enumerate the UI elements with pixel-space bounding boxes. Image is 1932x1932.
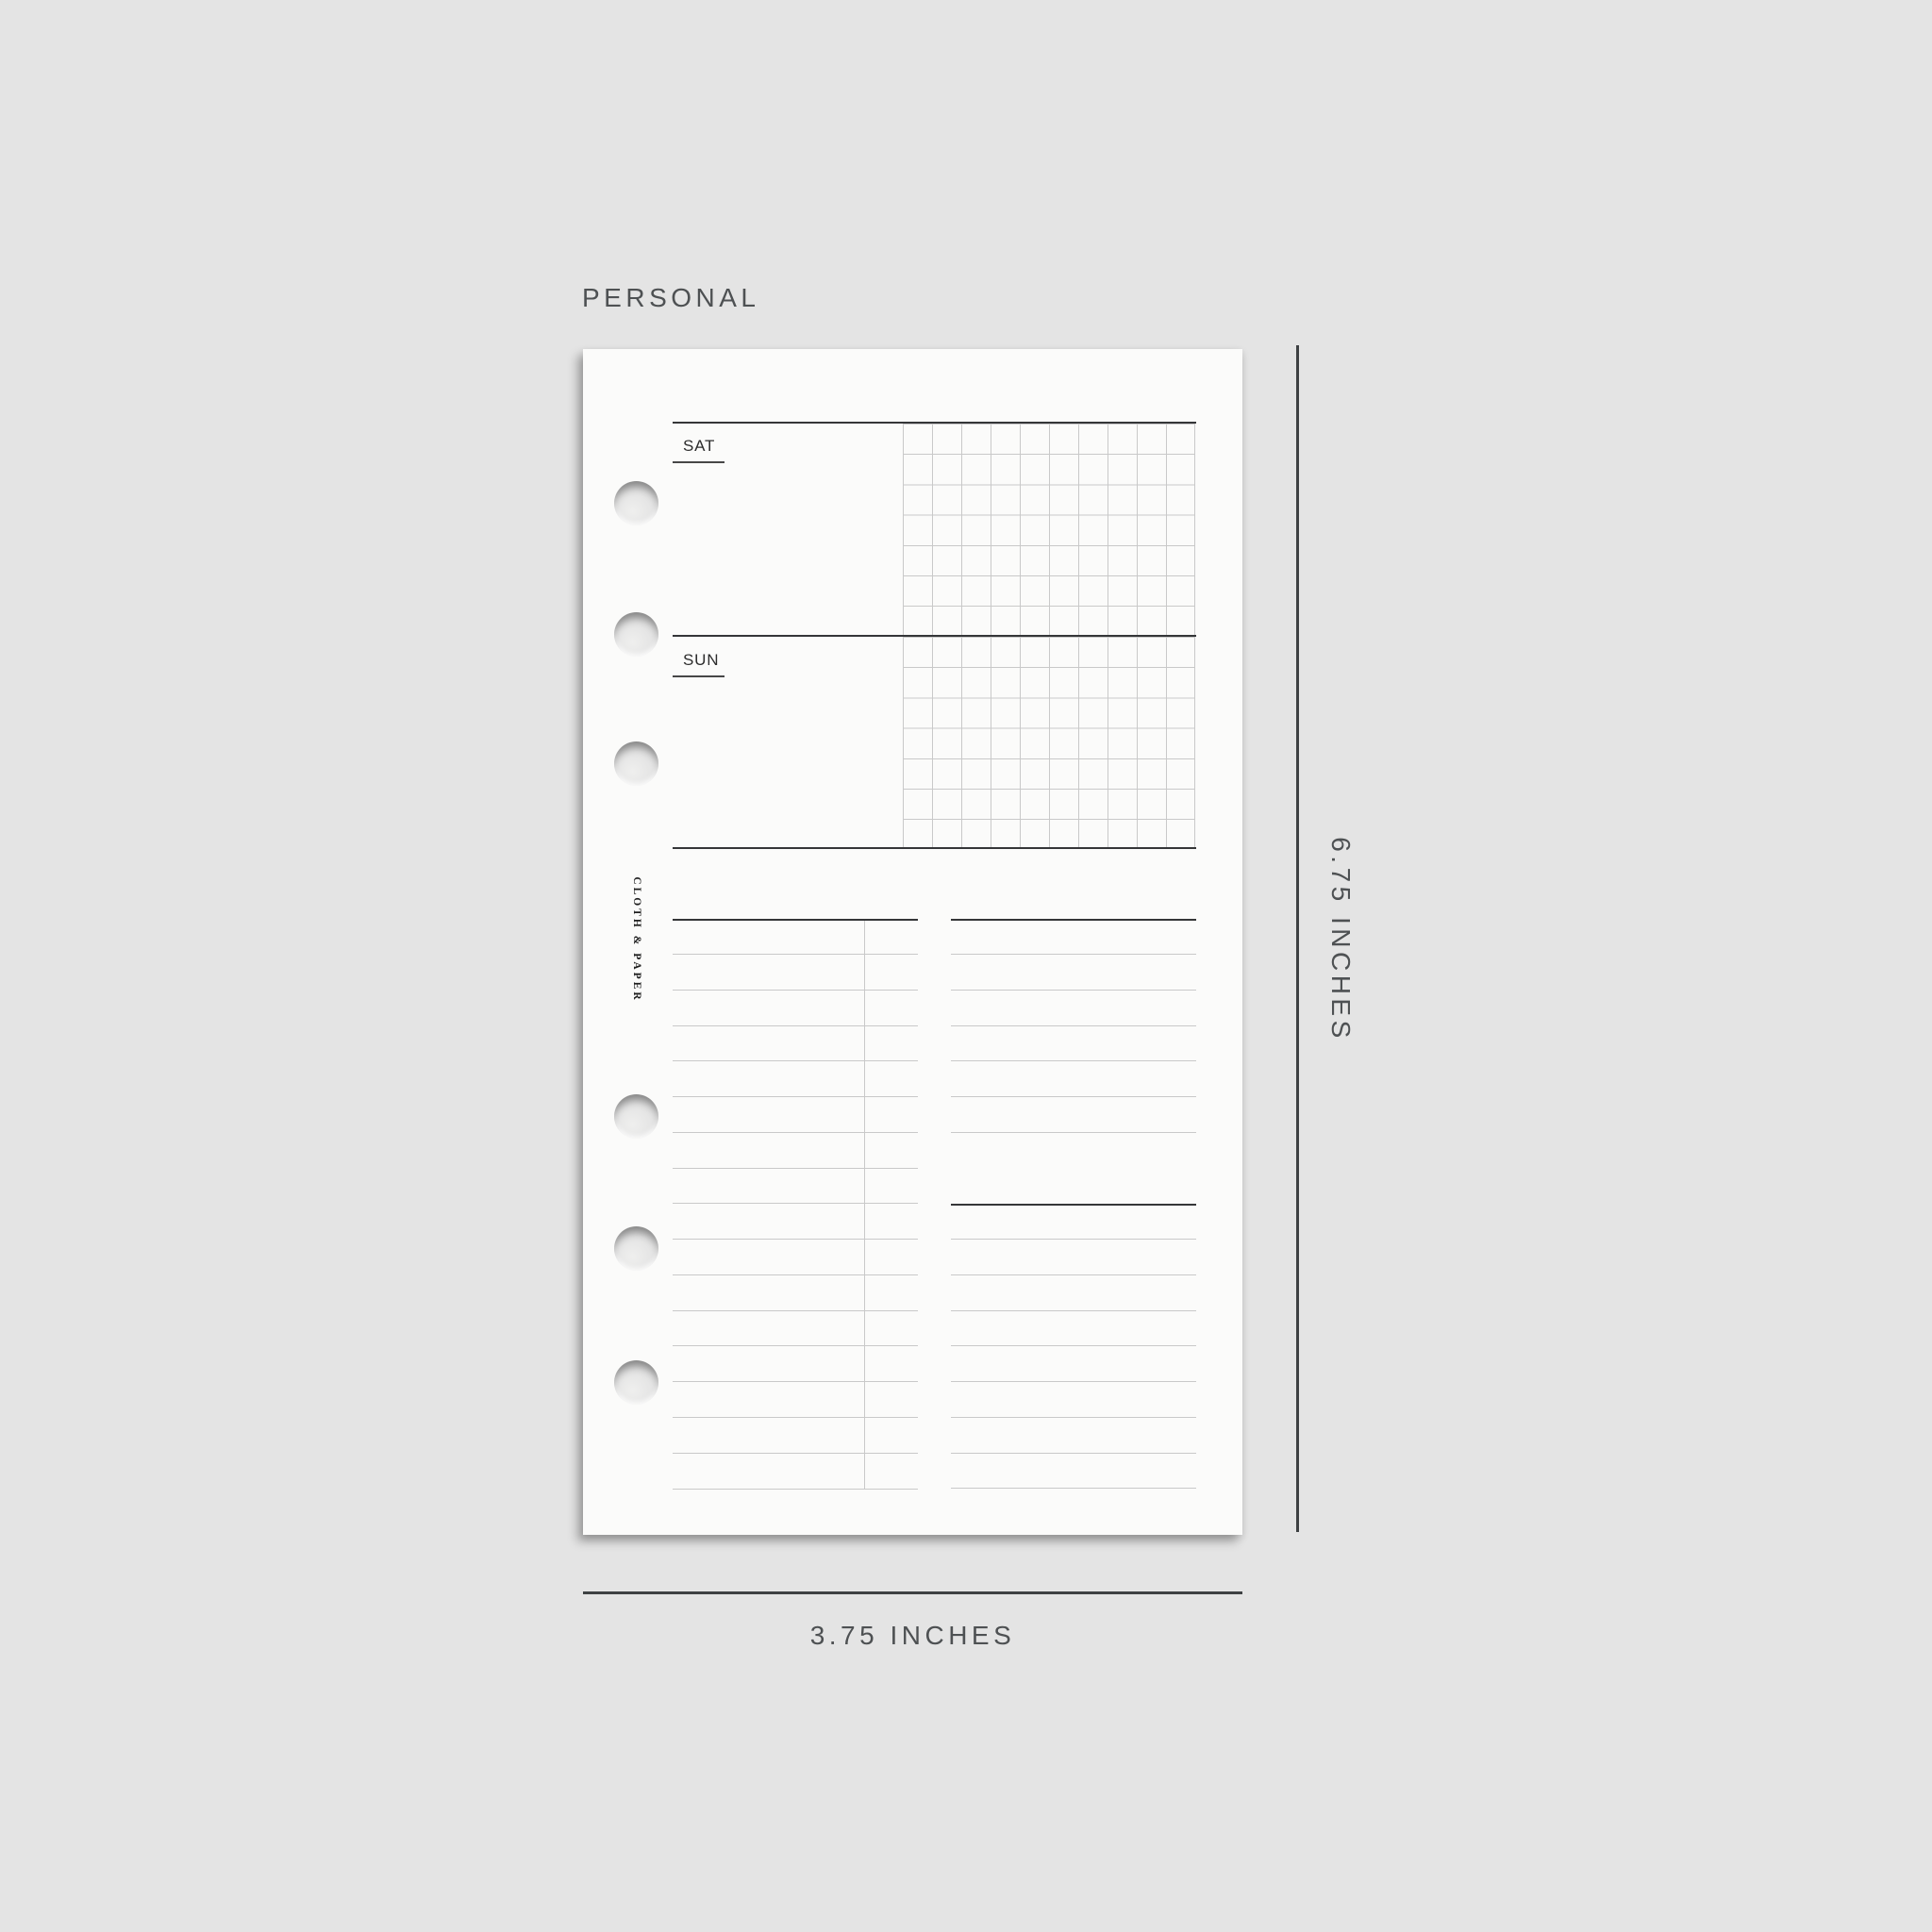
punch-hole: [614, 1226, 658, 1271]
punch-hole: [614, 1360, 658, 1405]
height-dimension-label: 6.75 INCHES: [1325, 837, 1356, 1042]
right-column-second-header-rule: [951, 1204, 1196, 1206]
left-column-ruled-line: [673, 954, 918, 955]
right-column-ruled-line: [951, 1345, 1196, 1346]
brand-logo-text: CLOTH & PAPER: [631, 876, 642, 1002]
right-column-ruled-line: [951, 1274, 1196, 1275]
left-column-ruled-line: [673, 1096, 918, 1097]
right-column-ruled-line: [951, 1025, 1196, 1026]
left-column-ruled-line: [673, 1239, 918, 1240]
left-column-header-rule: [673, 919, 918, 921]
punch-hole: [614, 612, 658, 657]
sun-graph-grid: [903, 637, 1195, 847]
sat-graph-grid: [903, 424, 1195, 636]
planner-insert-page: SAT SUN CLOTH & PAPER: [583, 349, 1242, 1535]
height-dimension-line: [1296, 345, 1299, 1532]
right-column-ruled-line: [951, 1132, 1196, 1133]
punch-hole: [614, 741, 658, 786]
width-dimension-label: 3.75 INCHES: [583, 1621, 1242, 1651]
left-column-ruled-line: [673, 1417, 918, 1418]
left-column-ruled-line: [673, 1381, 918, 1382]
right-column-header-rule: [951, 919, 1196, 921]
right-column-ruled-line: [951, 1381, 1196, 1382]
left-column-ruled-line: [673, 1453, 918, 1454]
left-column-ruled-line: [673, 990, 918, 991]
punch-hole: [614, 481, 658, 525]
sunday-underline: [673, 675, 724, 677]
punch-hole: [614, 1094, 658, 1139]
left-column-ruled-line: [673, 1345, 918, 1346]
right-column-ruled-line: [951, 1453, 1196, 1454]
left-column-ruled-line: [673, 1203, 918, 1204]
saturday-underline: [673, 461, 724, 463]
sunday-label: SUN: [683, 651, 719, 670]
left-column-ruled-line: [673, 1132, 918, 1133]
right-column-ruled-line: [951, 954, 1196, 955]
saturday-label: SAT: [683, 437, 715, 456]
weekend-section-bottom-rule: [673, 847, 1196, 849]
product-mockup-stage: PERSONAL SAT SUN CLOTH & PAPER 6.75 INCH…: [0, 0, 1932, 1932]
left-column-ruled-line: [673, 1274, 918, 1275]
left-column-ruled-line: [673, 1025, 918, 1026]
right-column-ruled-line: [951, 1310, 1196, 1311]
left-column-ruled-line: [673, 1310, 918, 1311]
left-column-ruled-line: [673, 1489, 918, 1490]
right-column-ruled-line: [951, 1096, 1196, 1097]
left-column-ruled-line: [673, 1168, 918, 1169]
right-column-ruled-line: [951, 990, 1196, 991]
right-column-ruled-line: [951, 1239, 1196, 1240]
right-column-ruled-line: [951, 1060, 1196, 1061]
left-column-vertical-divider: [864, 921, 865, 1490]
width-dimension-line: [583, 1591, 1242, 1594]
size-name-label: PERSONAL: [582, 283, 760, 313]
right-column-ruled-line: [951, 1417, 1196, 1418]
left-column-ruled-line: [673, 1060, 918, 1061]
right-column-ruled-line: [951, 1488, 1196, 1489]
